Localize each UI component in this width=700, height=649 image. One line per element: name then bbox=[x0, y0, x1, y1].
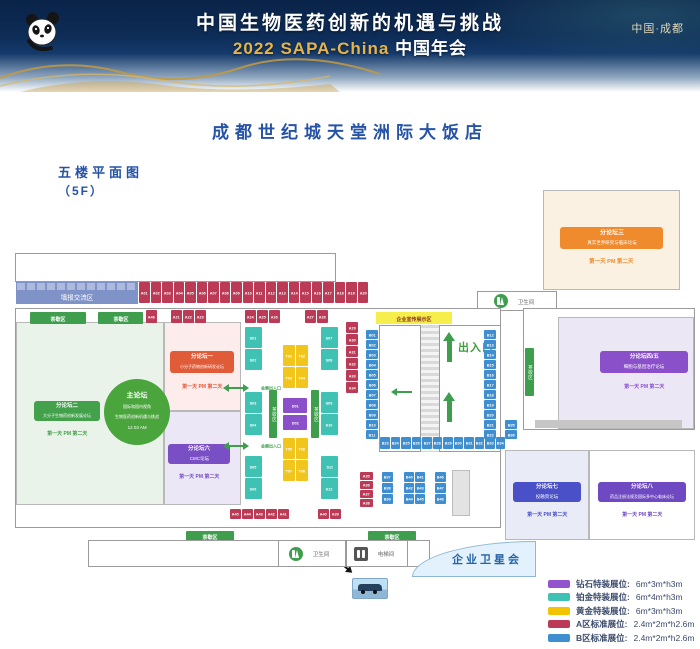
forum-8-label: 分论坛八 药品注册法规及国际多中心临床论坛 bbox=[598, 482, 686, 502]
booth-A20: A20 bbox=[358, 282, 369, 303]
diamond-booths: D01D02 bbox=[283, 398, 307, 430]
legend-item-diamond: 钻石特装展位: 6m*3m*h3m bbox=[548, 577, 694, 590]
booth-cluster-b1: B37B38B39 bbox=[382, 472, 393, 504]
booth-B19: B19 bbox=[484, 400, 496, 409]
booth-B30: B30 bbox=[454, 437, 464, 449]
poster-exchange-zone: 墙报交流区 bbox=[16, 282, 138, 304]
platinum-left-2: S03S04 bbox=[245, 392, 262, 435]
booth-B47: B47 bbox=[435, 483, 446, 493]
booth-A34: A34 bbox=[346, 382, 358, 393]
banner-title: 中国生物医药创新的机遇与挑战 bbox=[0, 8, 700, 35]
booth-B09: B09 bbox=[366, 410, 378, 419]
booth-B26: B26 bbox=[412, 437, 422, 449]
booth-col-b-right: B12B13B14B15B16B17B18B19B20B21B22 bbox=[484, 330, 496, 439]
booth-A08: A08 bbox=[220, 282, 231, 303]
booth-B34: B34 bbox=[496, 437, 506, 449]
booth-B31: B31 bbox=[464, 437, 474, 449]
booth-cluster-b2: B40B41B42B43B44B45 bbox=[404, 472, 425, 504]
forum-3-schedule: 第一天 PM 第二天 bbox=[560, 252, 663, 270]
booth-A10: A10 bbox=[243, 282, 254, 303]
forum-2-label: 分论坛二 大分子生物药创新发展论坛 bbox=[34, 401, 100, 421]
booth-group-a27-28: A27A28 bbox=[305, 310, 328, 323]
booth-A30: A30 bbox=[346, 334, 358, 345]
booth-B27: B27 bbox=[422, 437, 432, 449]
forum-7-schedule: 第一天 PM 第二天 bbox=[504, 505, 590, 523]
forum-6-schedule: 第一天 PM 第二天 bbox=[156, 467, 242, 485]
booth-B42: B42 bbox=[404, 483, 414, 493]
booth-B40: B40 bbox=[404, 472, 414, 482]
gray-wall-bar bbox=[535, 420, 682, 428]
booth-S08: S08 bbox=[321, 349, 338, 370]
booth-B25: B25 bbox=[401, 437, 411, 449]
tea-strip-center-left: 茶歇区 bbox=[269, 390, 277, 438]
booth-T02: T02 bbox=[296, 345, 308, 366]
booth-B38: B38 bbox=[382, 483, 393, 493]
legend-swatch-platinum bbox=[548, 593, 570, 601]
booth-row-a-bottom-2: A40A39 bbox=[318, 509, 341, 519]
booth-B16: B16 bbox=[484, 370, 496, 379]
booth-A13: A13 bbox=[277, 282, 288, 303]
booth-row-a-bottom-1: A45A44A43A42A41 bbox=[230, 509, 289, 519]
booth-A03: A03 bbox=[162, 282, 173, 303]
booth-A16: A16 bbox=[312, 282, 323, 303]
booth-A15: A15 bbox=[300, 282, 311, 303]
booth-B06: B06 bbox=[366, 380, 378, 389]
booth-A37: A37 bbox=[360, 490, 373, 498]
legend-item-gold: 黄金特装展位: 6m*3m*h3m bbox=[548, 604, 694, 617]
restroom-bottom: 卫生间 bbox=[278, 540, 346, 567]
booth-T04: T04 bbox=[296, 367, 308, 388]
booth-A02: A02 bbox=[151, 282, 162, 303]
forum-8-schedule: 第一天 PM 第二天 bbox=[599, 505, 685, 523]
banner-location: 中国·成都 bbox=[631, 20, 684, 36]
booth-B29: B29 bbox=[443, 437, 453, 449]
booth-S03: S03 bbox=[245, 392, 262, 413]
booth-A44: A44 bbox=[242, 509, 253, 519]
booth-S11: S11 bbox=[321, 456, 338, 477]
booth-A01: A01 bbox=[139, 282, 150, 303]
tea-strip-center-right: 茶歇区 bbox=[311, 390, 319, 438]
expo-entrance-2: 会展出入口 bbox=[228, 438, 296, 453]
booth-A32: A32 bbox=[346, 358, 358, 369]
tea-break-bar-2: 茶歇区 bbox=[98, 312, 143, 324]
legend-swatch-diamond bbox=[548, 580, 570, 588]
booth-A45: A45 bbox=[230, 509, 241, 519]
booth-A35: A35 bbox=[360, 472, 373, 480]
forum-1-label: 分论坛一 小分子药物创新研发论坛 bbox=[170, 351, 234, 373]
booth-B04: B04 bbox=[366, 360, 378, 369]
booth-A27: A27 bbox=[305, 310, 316, 323]
booth-B01: B01 bbox=[366, 330, 378, 339]
booth-B33: B33 bbox=[485, 437, 495, 449]
booth-B14: B14 bbox=[484, 350, 496, 359]
booth-A12: A12 bbox=[266, 282, 277, 303]
booth-A26: A26 bbox=[269, 310, 280, 323]
booth-B20: B20 bbox=[484, 410, 496, 419]
booth-B13: B13 bbox=[484, 340, 496, 349]
satellite-meeting-area: 企业卫星会 bbox=[412, 541, 536, 577]
legend-swatch-zone-b bbox=[548, 634, 570, 642]
legend: 钻石特装展位: 6m*3m*h3m 铂金特装展位: 6m*4m*h3m 黄金特装… bbox=[548, 577, 694, 644]
booth-S04: S04 bbox=[245, 414, 262, 435]
booth-A21: A21 bbox=[171, 310, 182, 323]
booth-A19: A19 bbox=[346, 282, 357, 303]
booth-col-a-right: A29A30A31A32A33A34 bbox=[346, 322, 358, 393]
room-forum-45 bbox=[558, 317, 694, 429]
floor-plan-page: 中国生物医药创新的机遇与挑战 2022 SAPA-China 中国年会 中国·成… bbox=[0, 0, 700, 649]
booth-A39: A39 bbox=[330, 509, 341, 519]
double-arrow-icon bbox=[228, 387, 244, 389]
satellite-label: 企业卫星会 bbox=[426, 551, 522, 567]
booth-A23: A23 bbox=[195, 310, 206, 323]
banner-year-cn: 中国年会 bbox=[395, 39, 467, 58]
booth-B35: B35 bbox=[505, 420, 517, 429]
booth-B28: B28 bbox=[433, 437, 443, 449]
booth-T06: T06 bbox=[296, 438, 308, 459]
expo-entrance-1: 会展出入口 bbox=[228, 380, 296, 395]
booth-col-b-left: B01B02B03B04B05B06B07B08B09B10B11 bbox=[366, 330, 378, 439]
foyer-area bbox=[15, 253, 336, 282]
booth-B18: B18 bbox=[484, 390, 496, 399]
booth-group-a21-23: A21A22A23 bbox=[171, 310, 206, 323]
restroom-icon bbox=[289, 547, 303, 561]
booth-A22: A22 bbox=[183, 310, 194, 323]
escalator bbox=[420, 325, 440, 452]
booth-A06: A06 bbox=[197, 282, 208, 303]
booth-S10: S10 bbox=[321, 414, 338, 435]
booth-A33: A33 bbox=[346, 370, 358, 381]
booth-A41: A41 bbox=[278, 509, 289, 519]
header-banner: 中国生物医药创新的机遇与挑战 2022 SAPA-China 中国年会 中国·成… bbox=[0, 0, 700, 92]
elevator-room: 电梯间 bbox=[346, 540, 408, 567]
forum-45-label: 分论坛四/五 细胞与基因治疗论坛 bbox=[600, 351, 688, 373]
restroom-label: 卫生间 bbox=[517, 297, 534, 305]
booth-S02: S02 bbox=[245, 349, 262, 370]
booth-A46: A46 bbox=[146, 310, 157, 323]
booth-B17: B17 bbox=[484, 380, 496, 389]
booth-B32: B32 bbox=[475, 437, 485, 449]
forum-6-label: 分论坛六 CMC论坛 bbox=[168, 444, 230, 464]
forum-2-schedule: 第一天 PM 第二天 bbox=[24, 424, 110, 442]
legend-item-zone-a: A区标准展位: 2.4m*2m*h2.6m bbox=[548, 618, 694, 631]
booth-A25: A25 bbox=[257, 310, 268, 323]
booth-A38: A38 bbox=[360, 499, 373, 507]
legend-swatch-gold bbox=[548, 607, 570, 615]
platinum-right-1: S07S08 bbox=[321, 327, 338, 370]
booth-A11: A11 bbox=[254, 282, 265, 303]
booth-cluster-b3: B46B47B48 bbox=[435, 472, 446, 504]
booth-B12: B12 bbox=[484, 330, 496, 339]
booth-D01: D01 bbox=[283, 398, 307, 413]
booth-S07: S07 bbox=[321, 327, 338, 348]
car-display-image bbox=[352, 578, 388, 599]
booth-B41: B41 bbox=[415, 472, 425, 482]
booth-B10: B10 bbox=[366, 420, 378, 429]
forum-45-schedule: 第一天 PM 第二天 bbox=[600, 377, 688, 395]
elevator-icon bbox=[354, 547, 368, 561]
booth-A04: A04 bbox=[174, 282, 185, 303]
booth-B39: B39 bbox=[382, 494, 393, 504]
tea-break-bar-1: 茶歇区 bbox=[30, 312, 86, 324]
platinum-right-3: S11S12 bbox=[321, 456, 338, 499]
stage-block bbox=[452, 470, 470, 516]
booth-B05: B05 bbox=[366, 370, 378, 379]
booth-row-b: B23B24B25B26B27B28B29B30B31B32B33B34 bbox=[380, 437, 505, 449]
booth-A24: A24 bbox=[245, 310, 256, 323]
booth-B23: B23 bbox=[380, 437, 390, 449]
up-arrow-icon bbox=[447, 400, 452, 422]
banner-year-en: 2022 SAPA-China bbox=[233, 39, 389, 58]
left-arrow-icon bbox=[396, 391, 412, 393]
booth-S05: S05 bbox=[245, 456, 262, 477]
booth-B08: B08 bbox=[366, 400, 378, 409]
platinum-right-2: S09S10 bbox=[321, 392, 338, 435]
booth-B37: B37 bbox=[382, 472, 393, 482]
booth-row-a-top: A01A02A03A04A05A06A07A08A09A10A11A12A13A… bbox=[139, 282, 368, 303]
booth-A42: A42 bbox=[266, 509, 277, 519]
double-arrow-icon bbox=[228, 445, 244, 447]
booth-T07: T07 bbox=[283, 460, 295, 481]
booth-B07: B07 bbox=[366, 390, 378, 399]
platinum-left-1: S01S02 bbox=[245, 327, 262, 370]
booth-A05: A05 bbox=[185, 282, 196, 303]
legend-swatch-zone-a bbox=[548, 620, 570, 628]
booth-S12: S12 bbox=[321, 478, 338, 499]
poster-zone-label: 墙报交流区 bbox=[61, 292, 94, 302]
floor-label: 五楼平面图 bbox=[58, 162, 143, 181]
booth-A18: A18 bbox=[335, 282, 346, 303]
booth-B44: B44 bbox=[404, 494, 414, 504]
banner-subtitle: 2022 SAPA-China 中国年会 bbox=[0, 34, 700, 59]
tea-strip-right: 茶歇区 bbox=[525, 348, 534, 396]
booth-A14: A14 bbox=[289, 282, 300, 303]
booth-B03: B03 bbox=[366, 350, 378, 359]
booth-B48: B48 bbox=[435, 494, 446, 504]
booth-B43: B43 bbox=[415, 483, 425, 493]
booth-B15: B15 bbox=[484, 360, 496, 369]
legend-item-platinum: 铂金特装展位: 6m*4m*h3m bbox=[548, 591, 694, 604]
forum-3-label: 分论坛三 真实世界研究与临床论坛 bbox=[560, 227, 663, 249]
booth-A09: A09 bbox=[231, 282, 242, 303]
booth-D02: D02 bbox=[283, 415, 307, 430]
platinum-left-3: S05S06 bbox=[245, 456, 262, 499]
booth-A28: A28 bbox=[317, 310, 328, 323]
booth-col-a-bottom: A35A36A37A38 bbox=[360, 472, 373, 507]
booth-B46: B46 bbox=[435, 472, 446, 482]
booth-B36: B36 bbox=[505, 430, 517, 439]
booth-S09: S09 bbox=[321, 392, 338, 413]
booth-A43: A43 bbox=[254, 509, 265, 519]
booth-S06: S06 bbox=[245, 478, 262, 499]
booth-A31: A31 bbox=[346, 346, 358, 357]
booth-group-a24-26: A24A25A26 bbox=[245, 310, 280, 323]
hotel-title: 成都世纪城天堂洲际大饭店 bbox=[0, 118, 700, 143]
forum-7-label: 分论坛七 投融资论坛 bbox=[513, 482, 581, 502]
booth-A17: A17 bbox=[323, 282, 334, 303]
booth-A40: A40 bbox=[318, 509, 329, 519]
booth-B21: B21 bbox=[484, 420, 496, 429]
booth-A36: A36 bbox=[360, 481, 373, 489]
booth-B11: B11 bbox=[366, 430, 378, 439]
promo-zone: 企业宣传展示区 bbox=[376, 312, 452, 324]
booth-B45: B45 bbox=[415, 494, 425, 504]
booth-B24: B24 bbox=[391, 437, 401, 449]
booth-S01: S01 bbox=[245, 327, 262, 348]
booth-B02: B02 bbox=[366, 340, 378, 349]
booth-A07: A07 bbox=[208, 282, 219, 303]
booth-T08: T08 bbox=[296, 460, 308, 481]
booth-A29: A29 bbox=[346, 322, 358, 333]
up-arrow-icon bbox=[447, 340, 452, 362]
floor-code: （5F） bbox=[58, 182, 104, 199]
booth-T01: T01 bbox=[283, 345, 295, 366]
restroom-icon bbox=[494, 294, 508, 308]
booth-pair-b: B35B36 bbox=[505, 420, 517, 439]
legend-item-zone-b: B区标准展位: 2.4m*2m*h2.6m bbox=[548, 631, 694, 644]
booth-a46: A46 bbox=[146, 310, 157, 323]
